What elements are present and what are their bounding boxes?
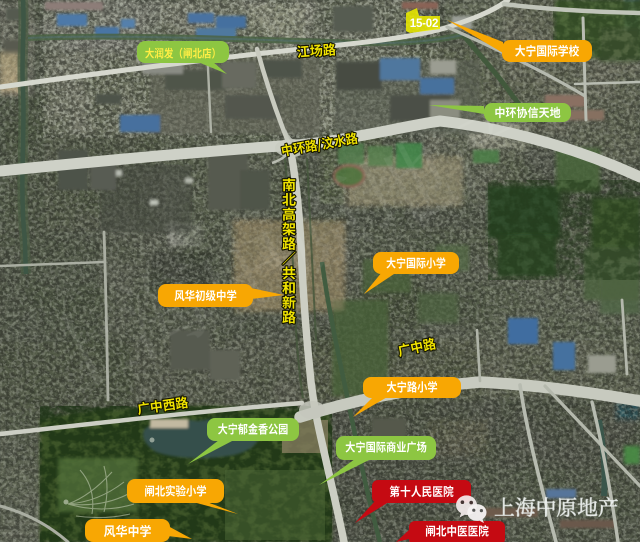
svg-text:15-02: 15-02 [410, 18, 438, 30]
